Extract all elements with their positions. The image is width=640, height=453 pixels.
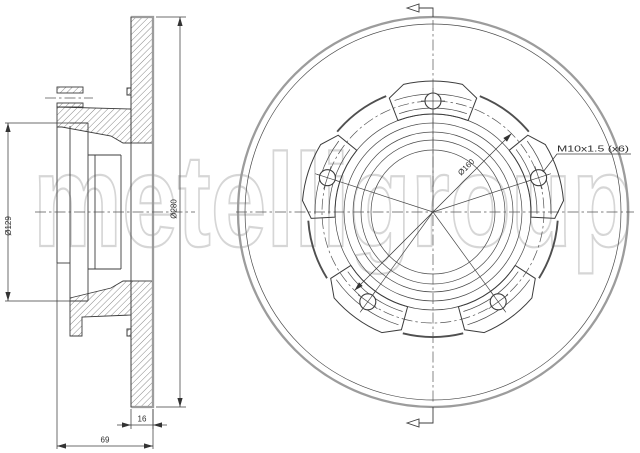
bore-diameter-label: Ø129 <box>4 216 13 236</box>
ring-step-lower <box>127 329 131 336</box>
thread-spec-label: M10x1.5 (x6) <box>557 145 630 154</box>
ring-step-upper <box>127 88 131 95</box>
brake-disc-technical-drawing: metelligroup <box>0 0 640 453</box>
stud-boss-section <box>57 87 83 93</box>
section-cut-arrow-top <box>407 4 419 12</box>
overall-depth-label: 69 <box>101 436 110 445</box>
disc-thickness-label: 16 <box>138 415 147 424</box>
stud-boss-section <box>57 103 83 107</box>
section-cut-arrow-bottom <box>407 419 419 427</box>
drawing-page: metelligroup <box>0 0 640 453</box>
friction-ring-lower-section <box>131 281 153 407</box>
flange-web-lower-section <box>70 281 131 336</box>
friction-ring-upper-section <box>131 17 153 143</box>
outer-diameter-label: Ø280 <box>170 199 179 219</box>
